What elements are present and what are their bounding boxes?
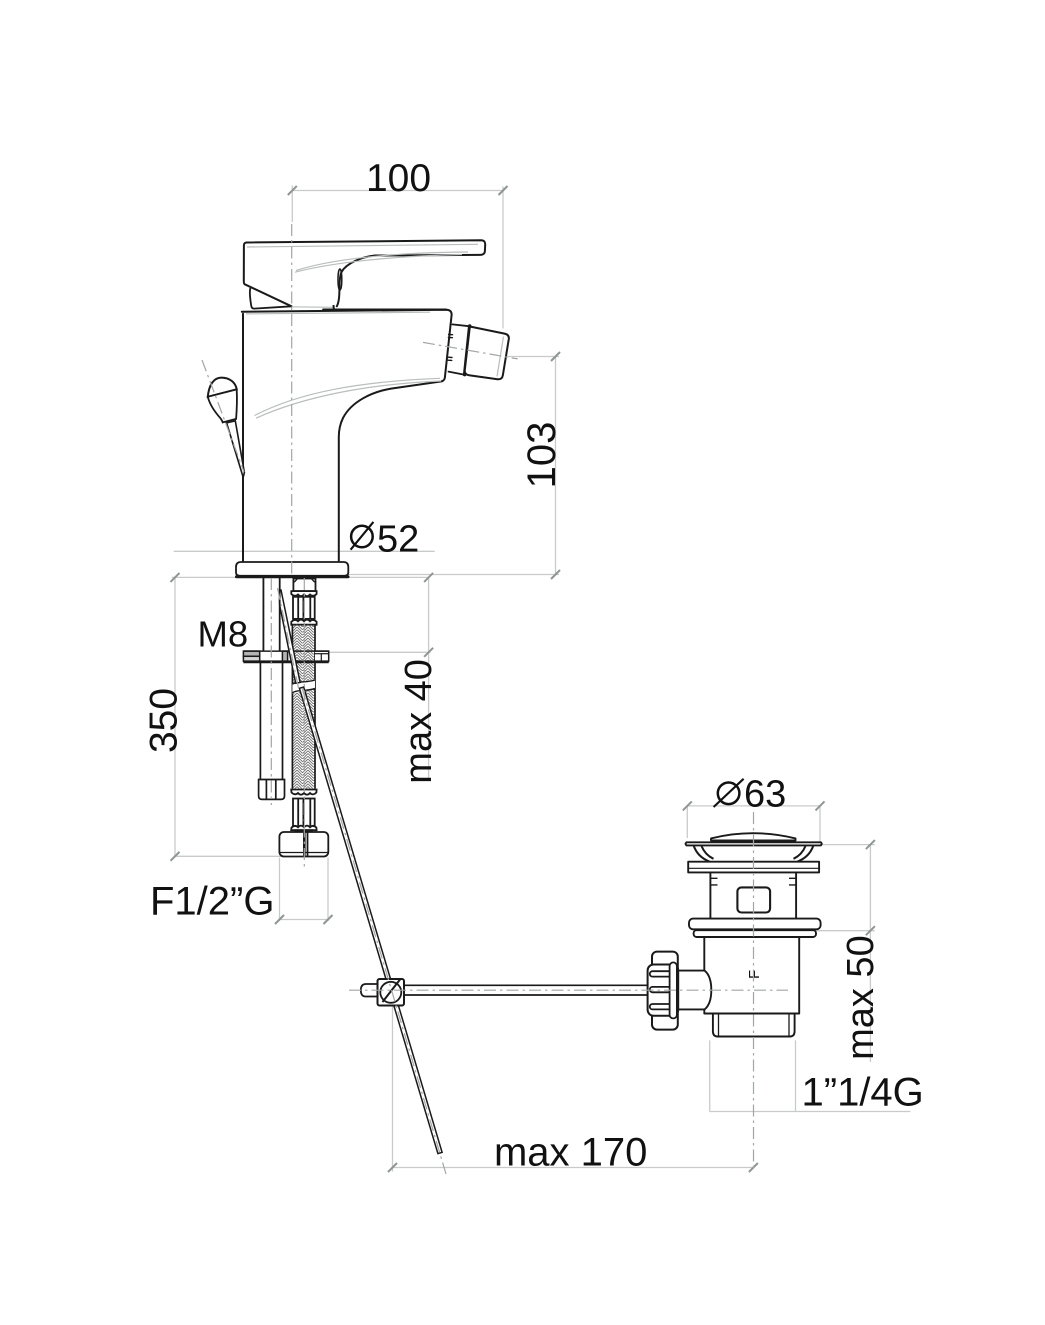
svg-text:63: 63 [744,774,786,816]
svg-text:F1/2”G: F1/2”G [150,880,274,924]
svg-text:F: F [746,970,763,979]
svg-text:max 170: max 170 [494,1131,647,1175]
svg-text:max 40: max 40 [398,659,440,784]
svg-text:100: 100 [366,157,431,200]
svg-text:103: 103 [520,422,564,489]
svg-text:1”1/4G: 1”1/4G [802,1071,924,1115]
svg-text:max 50: max 50 [840,935,882,1060]
svg-text:M8: M8 [198,614,249,655]
svg-text:52: 52 [377,519,419,561]
svg-text:350: 350 [143,688,186,753]
